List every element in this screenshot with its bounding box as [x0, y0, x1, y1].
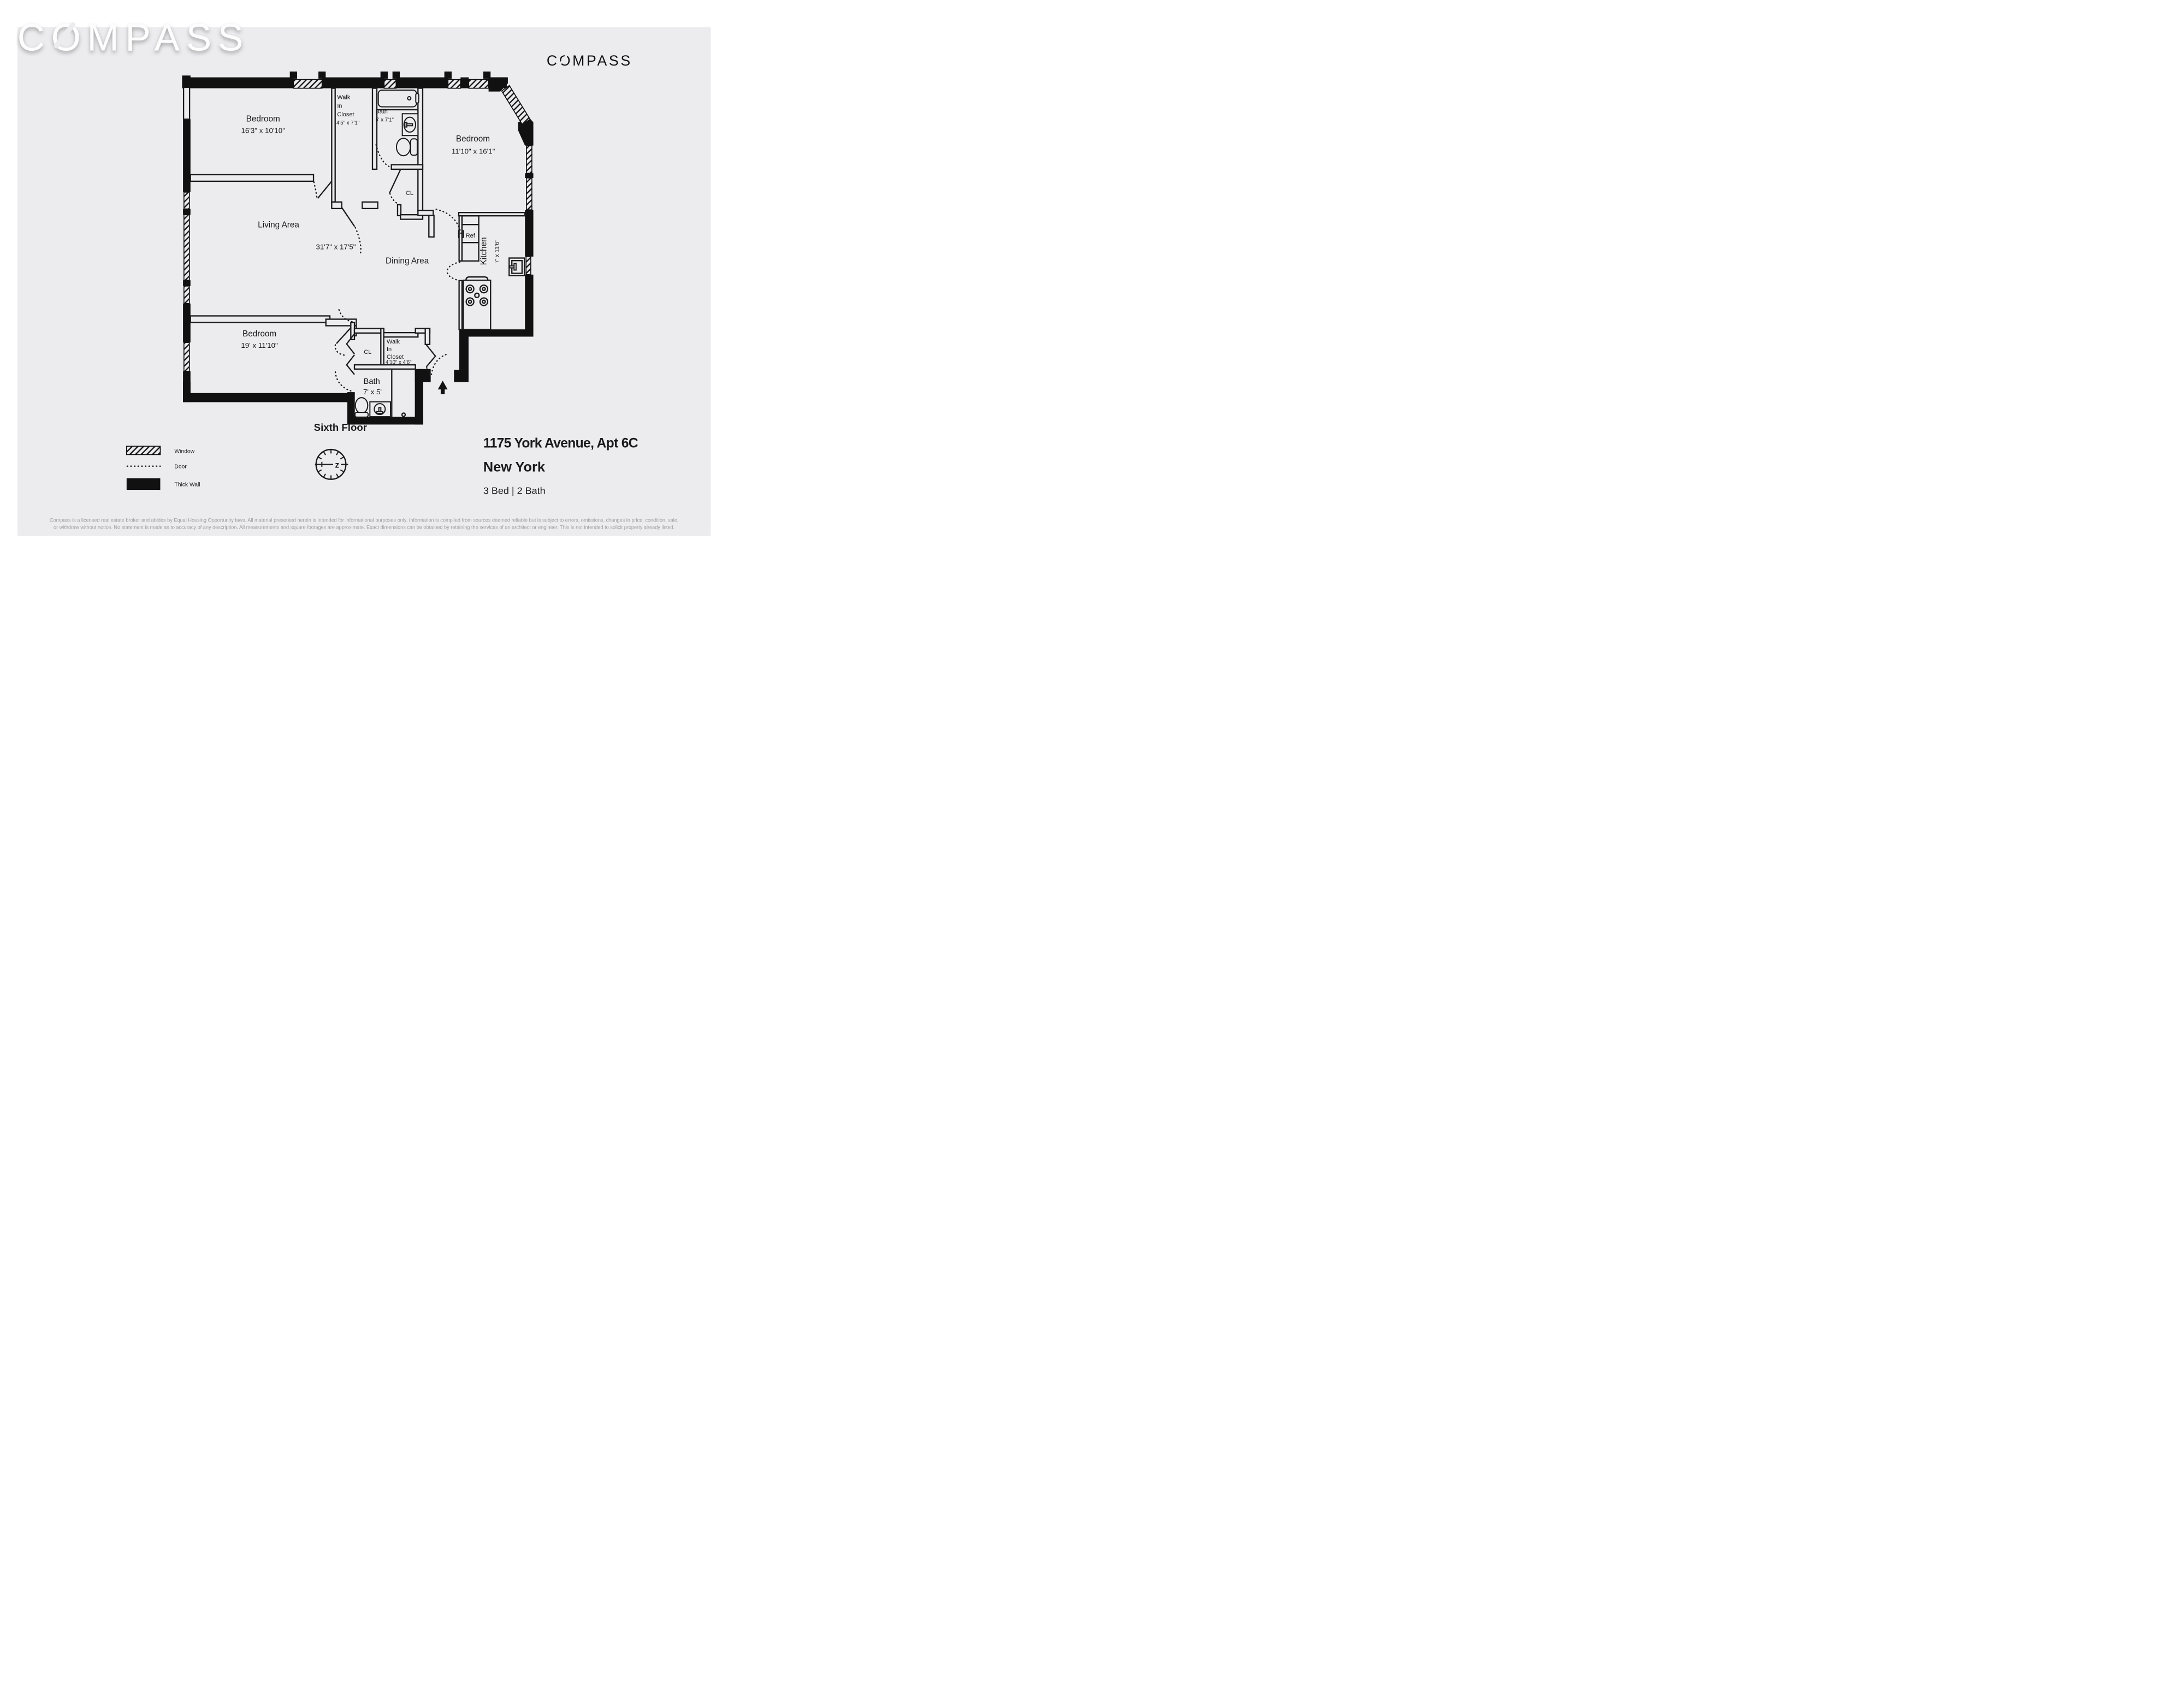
- room-label: Dining Area: [386, 257, 429, 266]
- room-label: Walk: [387, 339, 400, 345]
- room-label: Kitchen: [480, 237, 489, 265]
- room-label: Bath: [375, 108, 388, 115]
- room-dims: 5' x 7'1": [375, 117, 394, 123]
- floor-label: Sixth Floor: [314, 422, 367, 433]
- floorplan-canvas: COMPASS COMPASS: [0, 0, 728, 562]
- room-dims: 7' x 11'6": [494, 240, 500, 263]
- listing-city: New York: [483, 460, 546, 475]
- room-label: CL: [406, 190, 413, 197]
- tub-faucet-icon: [416, 93, 418, 103]
- room-dims: 7' x 5': [363, 388, 382, 396]
- floorplan-page: COMPASS COMPASS: [0, 0, 728, 562]
- room-label: In: [337, 103, 342, 109]
- room-dims: 11'10" x 16'1": [452, 147, 495, 156]
- legend-window-swatch: [127, 446, 161, 454]
- legend-window-label: Window: [174, 448, 194, 454]
- room-label: CL: [364, 349, 371, 356]
- room-label: In: [387, 346, 392, 353]
- toilet-bottom-icon: [356, 398, 368, 413]
- tub-drain-icon: [407, 97, 411, 100]
- legend-thick-wall-label: Thick Wall: [174, 482, 200, 488]
- legend-door-label: Door: [174, 464, 187, 470]
- room-label: Walk: [337, 94, 351, 101]
- room-label: Bedroom: [246, 115, 280, 124]
- listing-address: 1175 York Avenue, Apt 6C: [483, 436, 638, 451]
- listing-beds-baths: 3 Bed | 2 Bath: [483, 485, 546, 496]
- room-label: Bedroom: [456, 134, 490, 144]
- room-dims: 4'10" x 4'6": [386, 359, 412, 365]
- room-dims: 19' x 11'10": [241, 341, 278, 350]
- compass-logo: COMPASS: [547, 52, 632, 69]
- toilet-top-icon: [396, 138, 410, 156]
- fridge-label: Ref: [466, 233, 476, 239]
- room-label: Bedroom: [242, 329, 276, 339]
- legend-thick-wall-swatch: [127, 478, 161, 490]
- room-label: Bath: [364, 377, 380, 386]
- left-wall-thin-segment: [184, 87, 190, 119]
- canvas-background: [17, 27, 711, 536]
- room-label: Closet: [337, 111, 354, 118]
- compass-north-letter: z: [335, 460, 340, 470]
- room-dims: 4'5" x 7'1": [336, 120, 360, 126]
- disclaimer-line2: or withdraw without notice. No statement…: [54, 524, 674, 530]
- watermark-text: COMPASS: [17, 16, 250, 59]
- room-label: Living Area: [258, 221, 299, 230]
- room-dims: 31'7" x 17'5": [316, 243, 356, 251]
- room-dims: 16'3" x 10'10": [241, 126, 286, 134]
- disclaimer-line1: Compass is a licensed real estate broker…: [50, 518, 679, 523]
- compass-watermark-logo: COMPASS: [17, 16, 250, 59]
- logo-text: COMPASS: [547, 52, 632, 69]
